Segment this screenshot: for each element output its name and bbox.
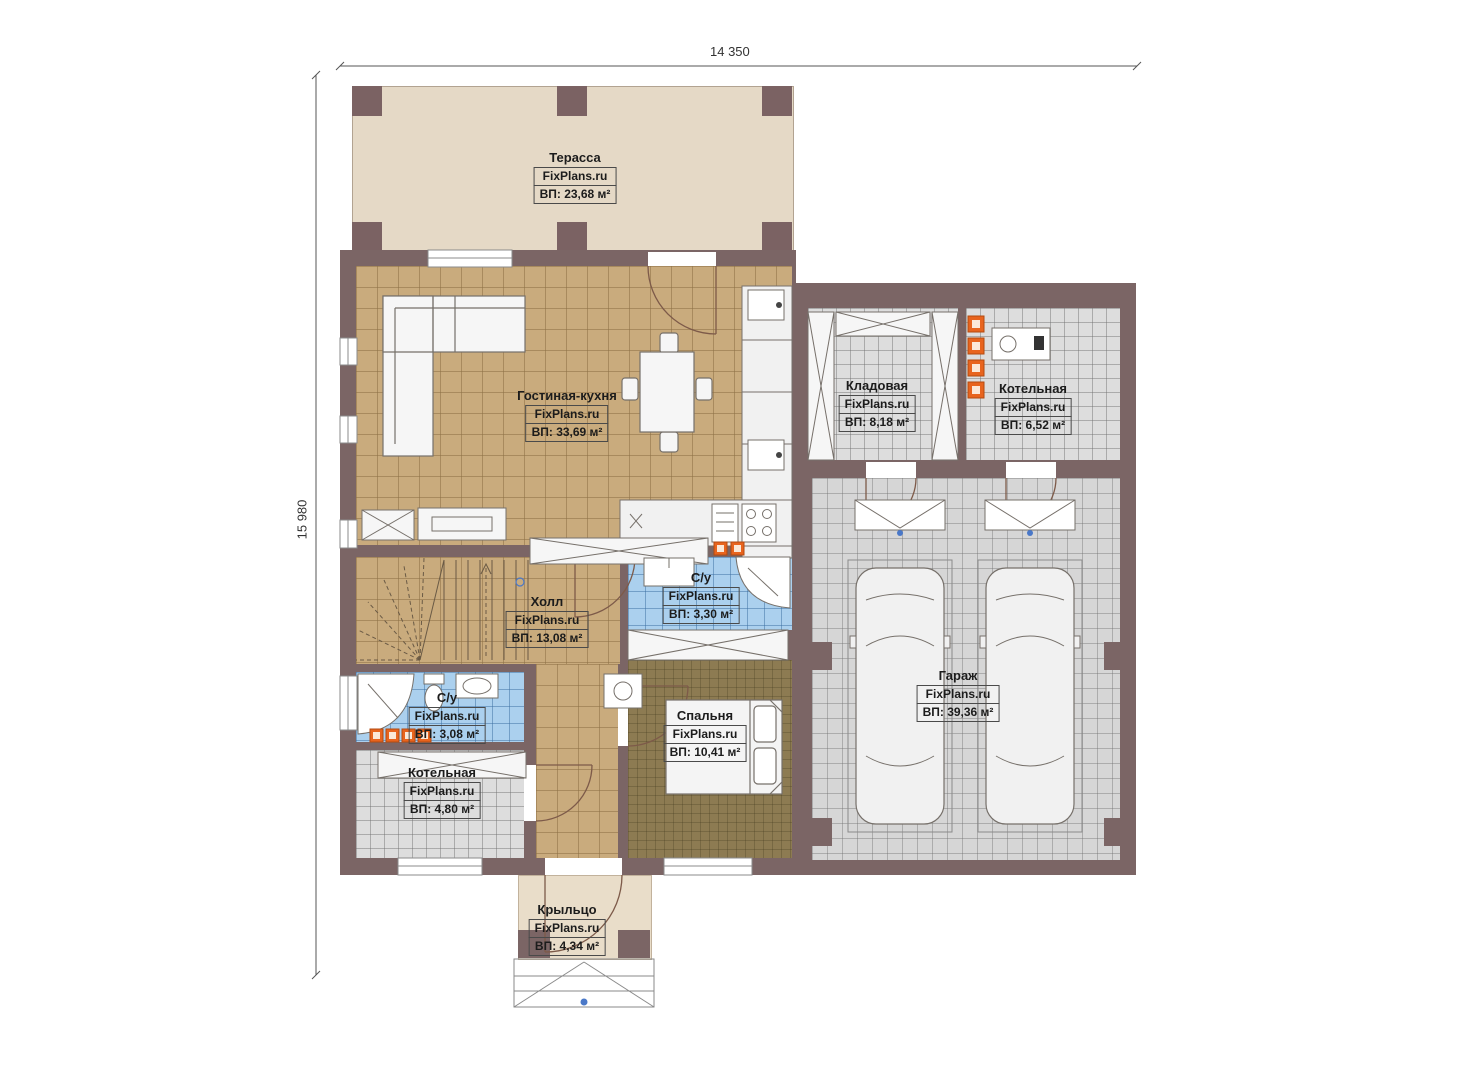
brand-box: FixPlans.ru (534, 167, 617, 186)
dining-table (622, 333, 712, 452)
sofa (383, 296, 525, 456)
area-box: ВП: 4,80 м² (404, 800, 481, 819)
plan-markers (516, 578, 524, 586)
room-name: Гостиная-кухня (517, 388, 617, 404)
room-label-boiler-upper: Котельная FixPlans.ruВП: 6,52 м² (995, 381, 1072, 435)
area-box: ВП: 8,18 м² (839, 413, 916, 432)
area-box: ВП: 13,08 м² (506, 629, 589, 648)
brand-box: FixPlans.ru (995, 398, 1072, 417)
room-name: Котельная (404, 765, 481, 781)
area-box: ВП: 3,08 м² (409, 725, 486, 744)
brand-box: FixPlans.ru (664, 725, 747, 744)
room-label-living-kitchen: Гостиная-кухня FixPlans.ruВП: 33,69 м² (517, 388, 617, 442)
room-label-hall: Холл FixPlans.ruВП: 13,08 м² (506, 594, 589, 648)
area-box: ВП: 39,36 м² (917, 703, 1000, 722)
brand-box: FixPlans.ru (526, 405, 609, 424)
room-name: Холл (506, 594, 589, 610)
room-name: Котельная (995, 381, 1072, 397)
room-label-boiler-lower: Котельная FixPlans.ruВП: 4,80 м² (404, 765, 481, 819)
room-name: Гараж (917, 668, 1000, 684)
stairs (356, 558, 528, 660)
porch-steps (514, 959, 654, 1007)
room-label-porch: Крыльцо FixPlans.ruВП: 4,34 м² (529, 902, 606, 956)
brand-box: FixPlans.ru (506, 611, 589, 630)
brand-box: FixPlans.ru (917, 685, 1000, 704)
area-box: ВП: 10,41 м² (664, 743, 747, 762)
area-box: ВП: 33,69 м² (526, 423, 609, 442)
room-label-garage: Гараж FixPlans.ruВП: 39,36 м² (917, 668, 1000, 722)
area-box: ВП: 6,52 м² (995, 416, 1072, 435)
bathroom-lower-fixtures (358, 674, 642, 734)
room-name: Терасса (534, 150, 617, 166)
room-label-storage: Кладовая FixPlans.ruВП: 8,18 м² (839, 378, 916, 432)
brand-box: FixPlans.ru (839, 395, 916, 414)
room-name: Спальня (664, 708, 747, 724)
room-name: С/у (409, 690, 486, 706)
garage-door-marks (855, 500, 1075, 536)
brand-box: FixPlans.ru (663, 587, 740, 606)
plan-linework (0, 0, 1474, 1080)
room-name: Кладовая (839, 378, 916, 394)
room-label-terrace: Терасса FixPlans.ruВП: 23,68 м² (534, 150, 617, 204)
area-box: ВП: 3,30 м² (663, 605, 740, 624)
area-box: ВП: 4,34 м² (529, 937, 606, 956)
brand-box: FixPlans.ru (409, 707, 486, 726)
room-label-bathroom-lower: С/у FixPlans.ruВП: 3,08 м² (409, 690, 486, 744)
brand-box: FixPlans.ru (529, 919, 606, 938)
room-name: С/у (663, 570, 740, 586)
room-label-bedroom: Спальня FixPlans.ruВП: 10,41 м² (664, 708, 747, 762)
brand-box: FixPlans.ru (404, 782, 481, 801)
floor-plan-canvas: 14 350 15 980 (0, 0, 1474, 1080)
tv-console (362, 508, 506, 540)
room-label-bathroom-upper: С/у FixPlans.ruВП: 3,30 м² (663, 570, 740, 624)
area-box: ВП: 23,68 м² (534, 185, 617, 204)
room-name: Крыльцо (529, 902, 606, 918)
